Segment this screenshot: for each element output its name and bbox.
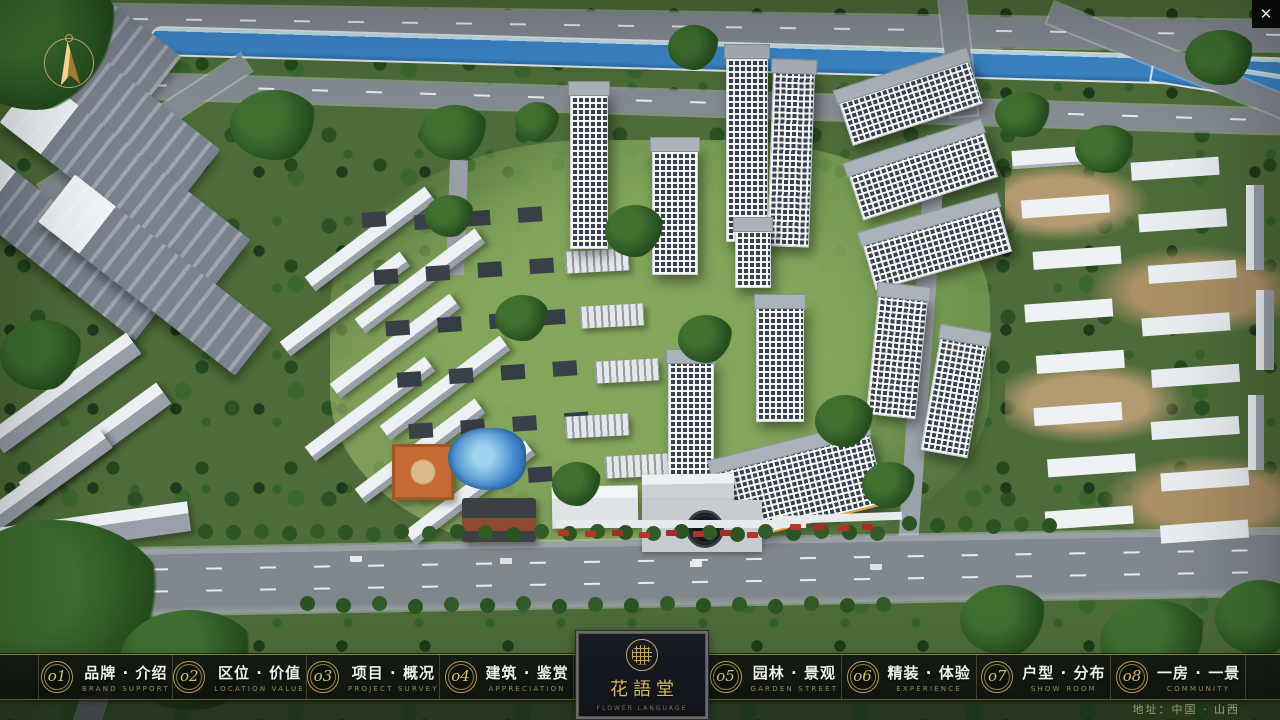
menu-item-interior[interactable]: o6 精装 · 体验EXPERIENCE xyxy=(841,655,976,699)
menu-label-en: SHOW ROOM xyxy=(1031,685,1097,693)
menu-item-floorplans[interactable]: o7 户型 · 分布SHOW ROOM xyxy=(976,655,1111,699)
tree-grove xyxy=(420,105,490,160)
east-edge-slab xyxy=(1256,290,1274,370)
tree-grove xyxy=(425,195,475,237)
tree-grove xyxy=(1075,125,1137,173)
tree-grove xyxy=(862,462,917,508)
moving-cars xyxy=(350,556,362,562)
menu-number-badge: o8 xyxy=(1116,661,1148,693)
residential-tower xyxy=(570,92,608,249)
menu-group-right: o5 园林 · 景观GARDEN STREET o6 精装 · 体验EXPERI… xyxy=(706,655,1246,699)
parked-cars xyxy=(790,524,801,530)
menu-label-en: LOCATION VALUE xyxy=(214,685,305,693)
aerial-map[interactable] xyxy=(0,0,1280,720)
residential-tower xyxy=(735,228,771,288)
menu-label-zh: 园林 · 景观 xyxy=(753,662,836,683)
menu-label-en: COMMUNITY xyxy=(1167,685,1230,693)
menu-label-en: GARDEN STREET xyxy=(751,685,839,693)
menu-item-brand[interactable]: o1 品牌 · 介绍BRAND SUPPORT xyxy=(38,655,172,699)
menu-item-project[interactable]: o3 项目 · 概况PROJECT SURVEY xyxy=(306,655,440,699)
menu-number-badge: o2 xyxy=(173,661,205,693)
residential-tower xyxy=(726,55,768,242)
courtyard-homes xyxy=(362,211,387,228)
menu-item-location[interactable]: o2 区位 · 价值LOCATION VALUE xyxy=(172,655,306,699)
menu-item-views[interactable]: o8 一房 · 一景COMMUNITY xyxy=(1110,655,1246,699)
menu-number-badge: o3 xyxy=(307,661,339,693)
menu-label-zh: 户型 · 分布 xyxy=(1022,662,1105,683)
menu-label-zh: 项目 · 概况 xyxy=(352,662,435,683)
tree-grove xyxy=(995,92,1053,137)
menu-number-badge: o6 xyxy=(847,661,879,693)
shop-canopy xyxy=(556,520,806,528)
brand-title: 花語堂 xyxy=(605,675,679,701)
clubhouse xyxy=(392,444,454,500)
menu-number-badge: o1 xyxy=(41,661,73,693)
tree-grove xyxy=(1185,30,1257,85)
east-ground-field xyxy=(1005,135,1280,580)
brand-seal-icon xyxy=(626,639,658,671)
close-button[interactable]: ✕ xyxy=(1252,0,1280,28)
main-street xyxy=(0,529,1280,618)
tree-grove xyxy=(605,205,665,257)
tree-grove xyxy=(668,25,720,70)
street-tree-row xyxy=(300,596,315,611)
menu-number-badge: o7 xyxy=(981,661,1013,693)
menu-label-zh: 品牌 · 介绍 xyxy=(84,662,167,683)
tree-grove xyxy=(960,585,1050,655)
menu-item-garden[interactable]: o5 园林 · 景观GARDEN STREET xyxy=(706,655,841,699)
menu-label-zh: 区位 · 价值 xyxy=(218,662,301,683)
menu-label-zh: 建筑 · 鉴赏 xyxy=(486,662,569,683)
plaza-emblem xyxy=(686,510,724,548)
east-edge-slab xyxy=(1248,395,1264,470)
presentation-stage: ✕ o1 品牌 · 介绍BRAND SUPPORT o2 区位 · 价值LOCA… xyxy=(0,0,1280,720)
address-text: 地址：中国 · 山西 xyxy=(1133,701,1241,717)
compass-icon xyxy=(40,34,98,92)
tree-grove xyxy=(495,295,550,341)
menu-label-zh: 精装 · 体验 xyxy=(888,662,971,683)
menu-item-architecture[interactable]: o4 建筑 · 鉴赏APPRECIATION xyxy=(439,655,574,699)
landscape-pond xyxy=(448,428,526,490)
garden-midrise xyxy=(579,303,644,328)
parked-cars xyxy=(558,530,569,536)
tree-grove xyxy=(678,315,734,363)
east-edge-slab xyxy=(1246,185,1264,270)
brand-logo-panel: 花語堂 FLOWER LANGUAGE xyxy=(576,631,708,719)
tree-grove xyxy=(815,395,875,447)
tree-grove xyxy=(230,90,320,160)
compass-north-marker xyxy=(65,34,73,42)
menu-number-badge: o5 xyxy=(710,661,742,693)
residential-tower xyxy=(767,69,815,247)
menu-number-badge: o4 xyxy=(445,661,477,693)
residential-tower xyxy=(756,305,804,422)
residential-tower xyxy=(652,148,698,275)
menu-label-en: PROJECT SURVEY xyxy=(348,685,439,693)
street-tree-row xyxy=(198,524,213,539)
garden-midrise xyxy=(594,358,659,383)
seal-lattice xyxy=(632,645,652,665)
menu-label-en: APPRECIATION xyxy=(489,685,566,693)
menu-label-en: EXPERIENCE xyxy=(896,685,962,693)
tree-grove xyxy=(0,320,85,390)
menu-group-left: o1 品牌 · 介绍BRAND SUPPORT o2 区位 · 价值LOCATI… xyxy=(38,655,574,699)
tree-grove xyxy=(515,102,560,142)
street-tree-row xyxy=(902,516,917,531)
brand-subtitle: FLOWER LANGUAGE xyxy=(597,705,688,712)
menu-label-en: BRAND SUPPORT xyxy=(82,685,170,693)
chinese-gate-pavilion xyxy=(462,498,536,542)
tree-grove xyxy=(552,462,602,506)
menu-label-zh: 一房 · 一景 xyxy=(1157,662,1240,683)
garden-midrise xyxy=(564,413,629,438)
